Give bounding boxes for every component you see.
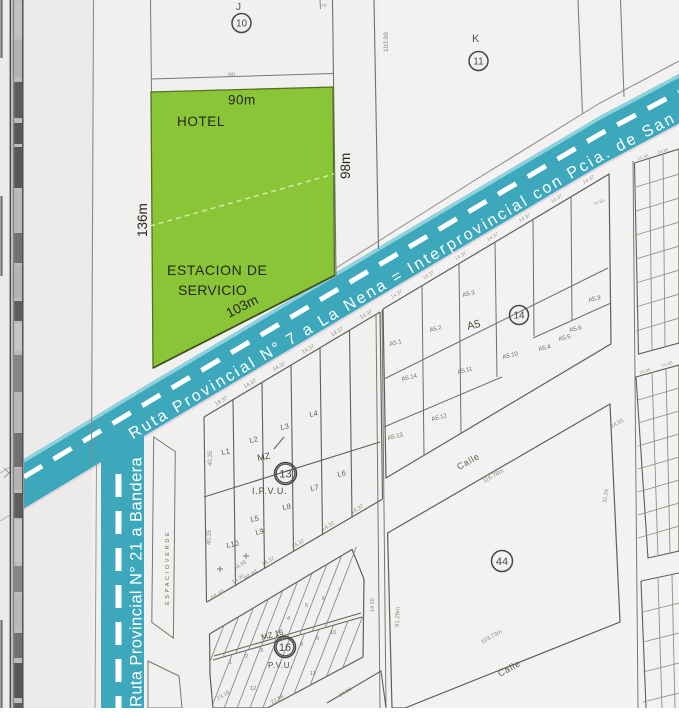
svg-text:I.P.V.U.: I.P.V.U. xyxy=(252,486,287,496)
svg-text:13: 13 xyxy=(279,469,291,481)
svg-text:2: 2 xyxy=(245,654,248,660)
svg-text:90: 90 xyxy=(228,72,236,79)
svg-text:8: 8 xyxy=(300,642,303,648)
svg-text:16: 16 xyxy=(279,642,291,654)
svg-text:HOTEL: HOTEL xyxy=(177,114,225,129)
svg-text:11: 11 xyxy=(310,671,316,677)
svg-text:14: 14 xyxy=(513,311,525,322)
svg-text:P.V.U.: P.V.U. xyxy=(268,661,293,670)
svg-text:10: 10 xyxy=(330,630,336,636)
svg-text:SERVICIO: SERVICIO xyxy=(178,282,247,298)
svg-text:91.29m: 91.29m xyxy=(395,607,402,627)
svg-text:6: 6 xyxy=(322,596,325,602)
svg-text:14.55: 14.55 xyxy=(370,598,376,612)
svg-text:ESTACION DE: ESTACION DE xyxy=(167,262,267,278)
svg-text:12: 12 xyxy=(250,686,256,692)
svg-text:90m: 90m xyxy=(228,93,256,108)
svg-text:m: m xyxy=(322,3,327,9)
svg-text:40.35: 40.35 xyxy=(208,450,214,466)
svg-text:98m: 98m xyxy=(338,153,353,179)
svg-text:Ruta Provincial N° 21 a Bander: Ruta Provincial N° 21 a Bandera xyxy=(128,456,146,707)
svg-text:4: 4 xyxy=(287,616,290,622)
svg-text:44: 44 xyxy=(496,556,508,568)
svg-text:7: 7 xyxy=(338,588,341,594)
svg-text:40.35: 40.35 xyxy=(207,529,213,545)
svg-text:5: 5 xyxy=(305,603,308,609)
svg-text:136m: 136m xyxy=(135,203,150,237)
svg-text:3: 3 xyxy=(260,648,263,654)
svg-text:E S P A C I O V E R D E: E S P A C I O V E R D E xyxy=(165,532,171,605)
svg-text:11: 11 xyxy=(473,57,484,68)
svg-text:103.98: 103.98 xyxy=(383,32,390,52)
svg-text:1: 1 xyxy=(229,660,232,666)
svg-text:9: 9 xyxy=(316,636,319,642)
svg-text:J: J xyxy=(236,2,241,13)
svg-text:K: K xyxy=(472,33,480,45)
svg-text:10: 10 xyxy=(236,19,248,30)
